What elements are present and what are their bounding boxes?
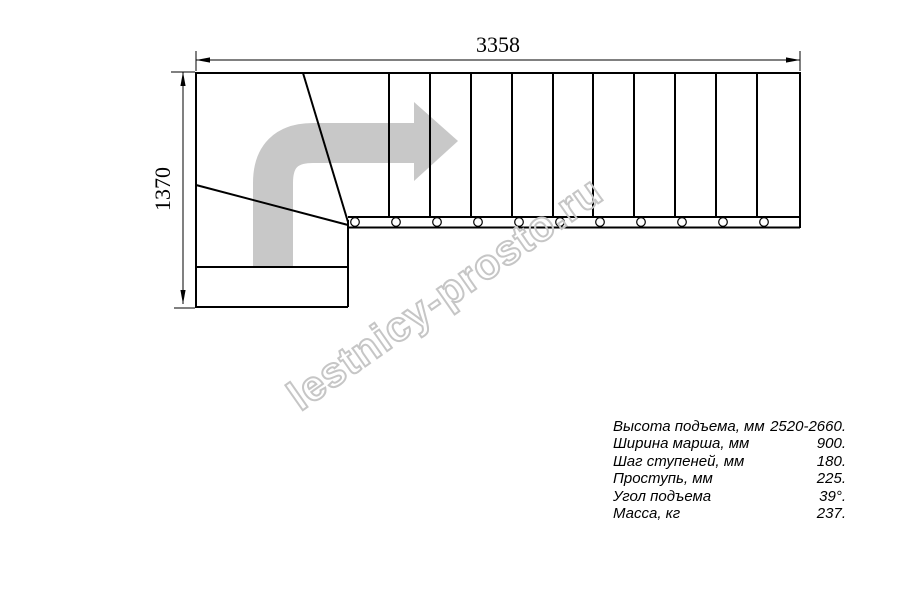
spec-value: 900.: [817, 435, 846, 452]
dim-arrow-up-icon: [180, 72, 185, 86]
spec-row-height: Высота подъема, мм 2520-2660.: [613, 418, 846, 435]
spec-value: 180.: [817, 453, 846, 470]
spec-value: 225.: [817, 470, 846, 487]
spec-label: Масса, кг: [613, 505, 680, 522]
left-dimension: 1370: [150, 72, 195, 308]
dim-arrow-down-icon: [180, 290, 185, 304]
spec-row-mass: Масса, кг 237.: [613, 505, 846, 522]
spec-row-flight-width: Ширина марша, мм 900.: [613, 435, 846, 452]
spec-label: Угол подъема: [613, 488, 711, 505]
drawing-canvas: 3358 1370 lestnicy-prosto.ru Высота подъ…: [0, 0, 900, 600]
spec-label: Проступь, мм: [613, 470, 713, 487]
spec-row-angle: Угол подъема 39°.: [613, 488, 846, 505]
dim-arrow-left-icon: [196, 57, 210, 62]
top-dimension: 3358: [196, 32, 800, 71]
spec-row-step-rise: Шаг ступеней, мм 180.: [613, 453, 846, 470]
spec-table: Высота подъема, мм 2520-2660. Ширина мар…: [613, 418, 846, 522]
spec-label: Высота подъема, мм: [613, 418, 765, 435]
spec-label: Шаг ступеней, мм: [613, 453, 744, 470]
dim-arrow-right-icon: [786, 57, 800, 62]
spec-value: 237.: [817, 505, 846, 522]
spec-label: Ширина марша, мм: [613, 435, 749, 452]
left-dimension-label: 1370: [150, 167, 175, 211]
spec-value: 39°.: [819, 488, 846, 505]
spec-value: 2520-2660.: [770, 418, 846, 435]
spec-row-tread: Проступь, мм 225.: [613, 470, 846, 487]
watermark-text: lestnicy-prosto.ru: [279, 167, 611, 419]
top-dimension-label: 3358: [476, 32, 520, 57]
